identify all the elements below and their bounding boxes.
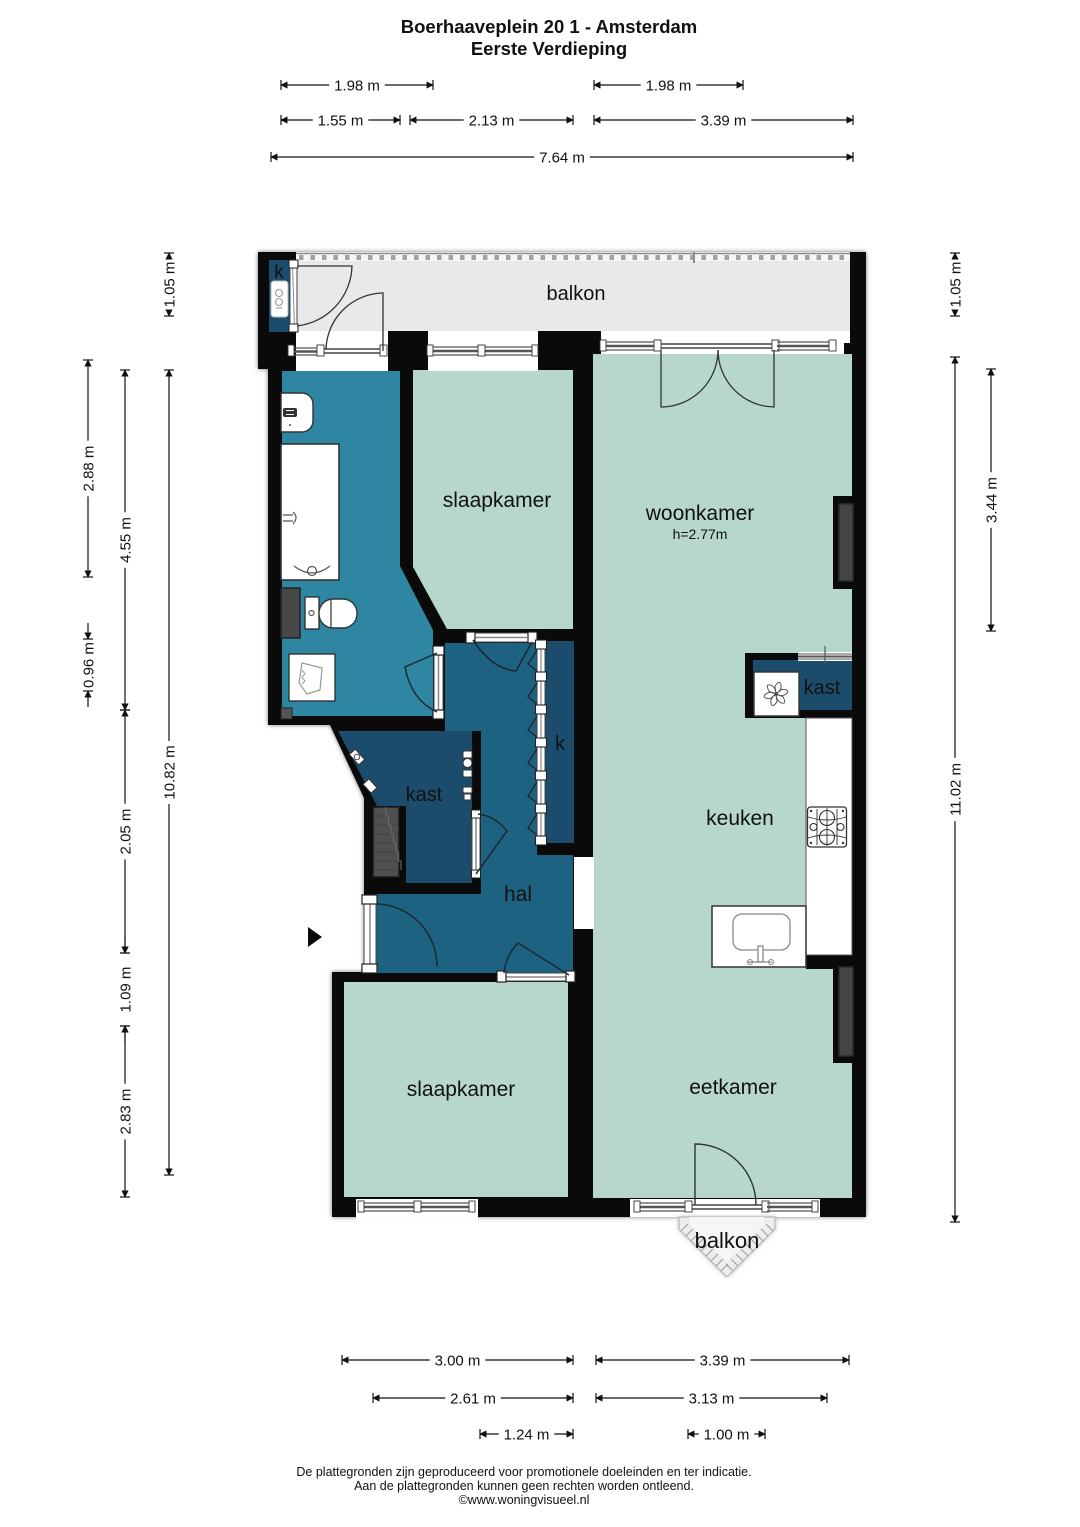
svg-text:Eerste Verdieping: Eerste Verdieping [471, 38, 627, 59]
svg-text:1.05 m: 1.05 m [162, 262, 179, 308]
svg-text:10.82 m: 10.82 m [162, 745, 179, 799]
svg-text:h=2.77m: h=2.77m [673, 526, 728, 542]
svg-text:1.00 m: 1.00 m [704, 1427, 750, 1444]
svg-text:3.13 m: 3.13 m [689, 1391, 735, 1408]
svg-text:0.96 m: 0.96 m [81, 642, 98, 688]
svg-text:2.61 m: 2.61 m [450, 1391, 496, 1408]
svg-text:k: k [274, 262, 284, 283]
svg-text:2.88 m: 2.88 m [81, 446, 98, 492]
svg-text:1.98 m: 1.98 m [646, 78, 692, 95]
svg-text:slaapkamer: slaapkamer [407, 1078, 516, 1101]
svg-text:1.24 m: 1.24 m [504, 1427, 550, 1444]
svg-text:kast: kast [406, 784, 443, 806]
svg-text:kast: kast [804, 677, 841, 699]
svg-text:balkon: balkon [695, 1228, 760, 1253]
svg-text:1.09 m: 1.09 m [118, 967, 135, 1013]
svg-text:3.39 m: 3.39 m [700, 1353, 746, 1370]
svg-text:Boerhaaveplein 20 1 - Amsterda: Boerhaaveplein 20 1 - Amsterdam [401, 16, 697, 37]
svg-text:woonkamer: woonkamer [645, 502, 755, 525]
svg-text:balkon: balkon [547, 283, 606, 305]
svg-text:3.39 m: 3.39 m [701, 113, 747, 130]
svg-text:1.55 m: 1.55 m [318, 113, 364, 130]
svg-text:slaapkamer: slaapkamer [443, 489, 552, 512]
svg-text:Aan de plattegronden kunnen ge: Aan de plattegronden kunnen geen rechten… [354, 1479, 694, 1493]
svg-text:k: k [555, 733, 566, 755]
svg-text:©www.woningvisueel.nl: ©www.woningvisueel.nl [459, 1493, 590, 1507]
svg-text:11.02 m: 11.02 m [948, 763, 965, 816]
svg-text:2.83 m: 2.83 m [118, 1089, 135, 1135]
svg-text:3.44 m: 3.44 m [984, 477, 1001, 523]
svg-text:3.00 m: 3.00 m [435, 1353, 481, 1370]
svg-text:2.05 m: 2.05 m [118, 809, 135, 855]
svg-text:1.05 m: 1.05 m [948, 262, 965, 308]
svg-text:1.98 m: 1.98 m [334, 78, 380, 95]
svg-text:2.13 m: 2.13 m [469, 113, 515, 130]
svg-text:keuken: keuken [706, 807, 774, 830]
svg-text:7.64 m: 7.64 m [539, 150, 585, 167]
svg-text:eetkamer: eetkamer [689, 1076, 777, 1099]
svg-text:4.55 m: 4.55 m [118, 517, 135, 563]
svg-text:De plattegronden zijn geproduc: De plattegronden zijn geproduceerd voor … [296, 1465, 751, 1479]
svg-text:hal: hal [504, 883, 532, 906]
